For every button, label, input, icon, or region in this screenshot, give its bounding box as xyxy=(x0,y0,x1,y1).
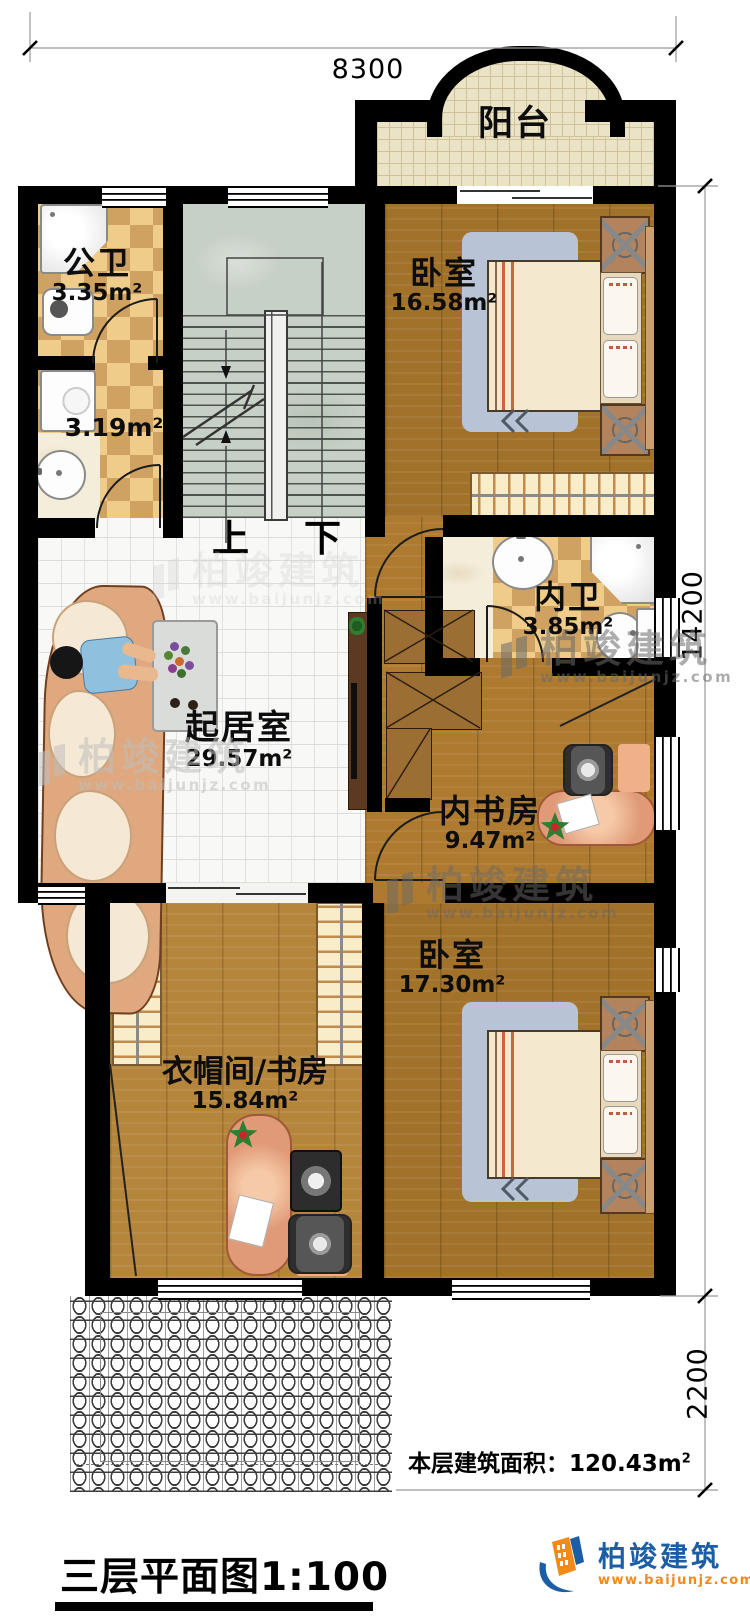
wall xyxy=(148,356,165,370)
stair-rail xyxy=(264,310,288,521)
desk xyxy=(226,1114,292,1276)
window xyxy=(38,885,85,905)
flower-bouquet xyxy=(170,642,179,651)
wall xyxy=(85,898,110,1296)
room-label-living: 起居室 29.57m² xyxy=(172,710,306,772)
brand-name: 柏竣建筑 xyxy=(598,1542,750,1573)
window xyxy=(102,186,166,208)
floor-plan: 阳台 公卫 3.35m² 3.19m² 卧室 16.58m² 内卫 3.85m²… xyxy=(0,0,750,1620)
stairs-down-label: 下 xyxy=(304,508,341,562)
window xyxy=(654,598,680,657)
office-chair xyxy=(288,1214,352,1274)
room-label-ensuite: 内卫 3.85m² xyxy=(512,580,624,639)
wall xyxy=(425,658,480,676)
wardrobe xyxy=(316,902,366,1066)
room-label-bedroom-bottom: 卧室 17.30m² xyxy=(396,938,508,997)
room-label-cloakroom: 衣帽间/书房 15.84m² xyxy=(140,1056,350,1114)
room-label-balcony: 阳台 xyxy=(455,106,575,144)
sliding-opening xyxy=(166,883,308,903)
roof-outline xyxy=(100,1312,360,1462)
dimension-top: 8300 xyxy=(320,54,416,85)
wardrobe xyxy=(470,472,659,519)
wall xyxy=(18,186,38,903)
wall xyxy=(443,515,676,537)
nightstand xyxy=(600,996,650,1052)
double-bed xyxy=(487,1030,604,1179)
door-opening xyxy=(373,883,445,903)
stairs-up-label: 上 xyxy=(212,508,249,562)
window xyxy=(452,1278,590,1300)
wall xyxy=(18,356,95,370)
tv xyxy=(351,683,357,779)
wall xyxy=(425,537,443,676)
cup xyxy=(170,698,180,708)
window xyxy=(228,186,328,208)
wall xyxy=(18,883,676,903)
brand-url: www.baijunjz.com xyxy=(598,1573,750,1588)
drawing-title: 三层平面图1:100 xyxy=(60,1546,389,1602)
wall xyxy=(367,598,382,812)
room-label-bedroom-top: 卧室 16.58m² xyxy=(388,256,500,315)
wall xyxy=(385,798,430,812)
roof-centerline xyxy=(76,1464,388,1465)
floor-area-note: 本层建筑面积：120.43m2 xyxy=(408,1444,691,1478)
plant-icon xyxy=(349,616,365,636)
sofa-cushion xyxy=(48,690,116,778)
sofa-cushion xyxy=(54,790,132,882)
computer-monitor xyxy=(290,1150,342,1212)
balcony-doorway xyxy=(457,186,593,204)
sink-drain xyxy=(56,470,62,476)
balcony-wall xyxy=(654,100,676,192)
wall xyxy=(365,186,385,537)
window xyxy=(158,1278,302,1300)
wall xyxy=(18,518,95,538)
plant-center xyxy=(551,823,559,831)
dimension-right-lower: 2200 xyxy=(683,1332,714,1436)
wall xyxy=(552,658,676,676)
sink-drain xyxy=(518,556,524,562)
storage-closet xyxy=(386,728,432,800)
wall xyxy=(163,186,183,538)
dimension-right-upper: 14200 xyxy=(678,551,709,681)
nightstand xyxy=(600,216,650,274)
window xyxy=(654,948,680,992)
double-bed xyxy=(487,260,604,412)
room-label-laundry: 3.19m² xyxy=(58,414,170,441)
brand-logo-icon xyxy=(532,1534,590,1596)
office-chair xyxy=(563,744,613,796)
shower-drain xyxy=(636,544,641,549)
window xyxy=(654,737,680,830)
plant-center xyxy=(239,1131,247,1139)
nightstand xyxy=(600,1158,650,1214)
toilet-flush xyxy=(630,630,636,636)
room-label-public-bath: 公卫 3.35m² xyxy=(38,246,156,305)
brand-text: 柏竣建筑 www.baijunjz.com xyxy=(598,1542,750,1588)
pillow xyxy=(603,1054,638,1102)
pillow xyxy=(603,277,638,335)
title-underline xyxy=(55,1602,373,1611)
shower-drain xyxy=(50,212,55,217)
storage-closet xyxy=(386,672,482,730)
balcony-wall xyxy=(355,100,437,122)
side-table xyxy=(618,744,650,792)
room-label-inner-study: 内书房 9.47m² xyxy=(430,794,550,853)
nightstand xyxy=(600,404,650,456)
brand-logo-block: 柏竣建筑 www.baijunjz.com xyxy=(532,1534,750,1596)
pillow xyxy=(603,340,638,398)
pillow xyxy=(603,1106,638,1154)
person-head xyxy=(50,646,83,679)
wall xyxy=(362,898,384,1278)
